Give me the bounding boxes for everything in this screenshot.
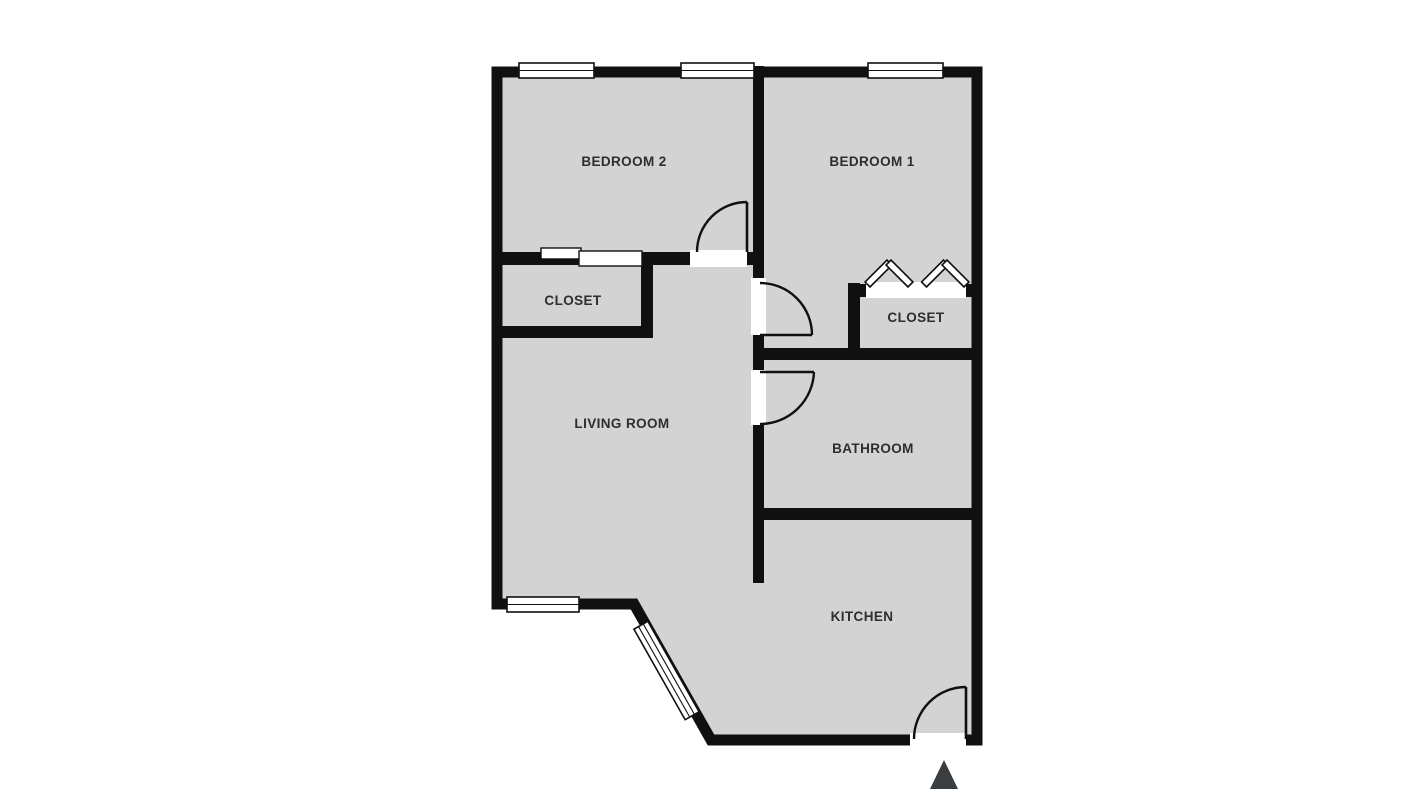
wall-bathroom-bottom <box>753 508 982 520</box>
window-living-room <box>507 597 579 612</box>
room-label-closet-left: CLOSET <box>544 293 602 308</box>
opening-bathroom-door <box>751 370 766 425</box>
wall-bathroom-top <box>753 348 982 360</box>
room-label-kitchen: KITCHEN <box>831 609 894 624</box>
opening-bedroom1-door <box>751 278 766 335</box>
floor-plan-canvas: BEDROOM 2 BEDROOM 1 CLOSET CLOSET LIVING… <box>0 0 1422 800</box>
wall-closet-left-bottom <box>492 326 653 338</box>
floor-plan: BEDROOM 2 BEDROOM 1 CLOSET CLOSET LIVING… <box>0 0 1422 800</box>
room-label-living-room: LIVING ROOM <box>574 416 669 431</box>
wall-divider-lower <box>753 425 764 583</box>
wall-closet-left-right <box>641 252 653 338</box>
opening-bedroom2-door <box>690 250 747 267</box>
opening-closet-right-door <box>866 282 966 298</box>
window-bedroom2-left <box>519 63 594 78</box>
unit-floor-outline <box>497 72 977 740</box>
wall-bedrooms-divider <box>753 66 764 278</box>
window-bedroom2-right <box>681 63 754 78</box>
window-bedroom1 <box>868 63 943 78</box>
room-label-bedroom-2: BEDROOM 2 <box>581 154 666 169</box>
room-label-bathroom: BATHROOM <box>832 441 914 456</box>
entrance-arrow-icon <box>930 760 958 789</box>
opening-entry-door <box>910 733 966 747</box>
room-label-bedroom-1: BEDROOM 1 <box>829 154 914 169</box>
room-label-closet-right: CLOSET <box>887 310 945 325</box>
